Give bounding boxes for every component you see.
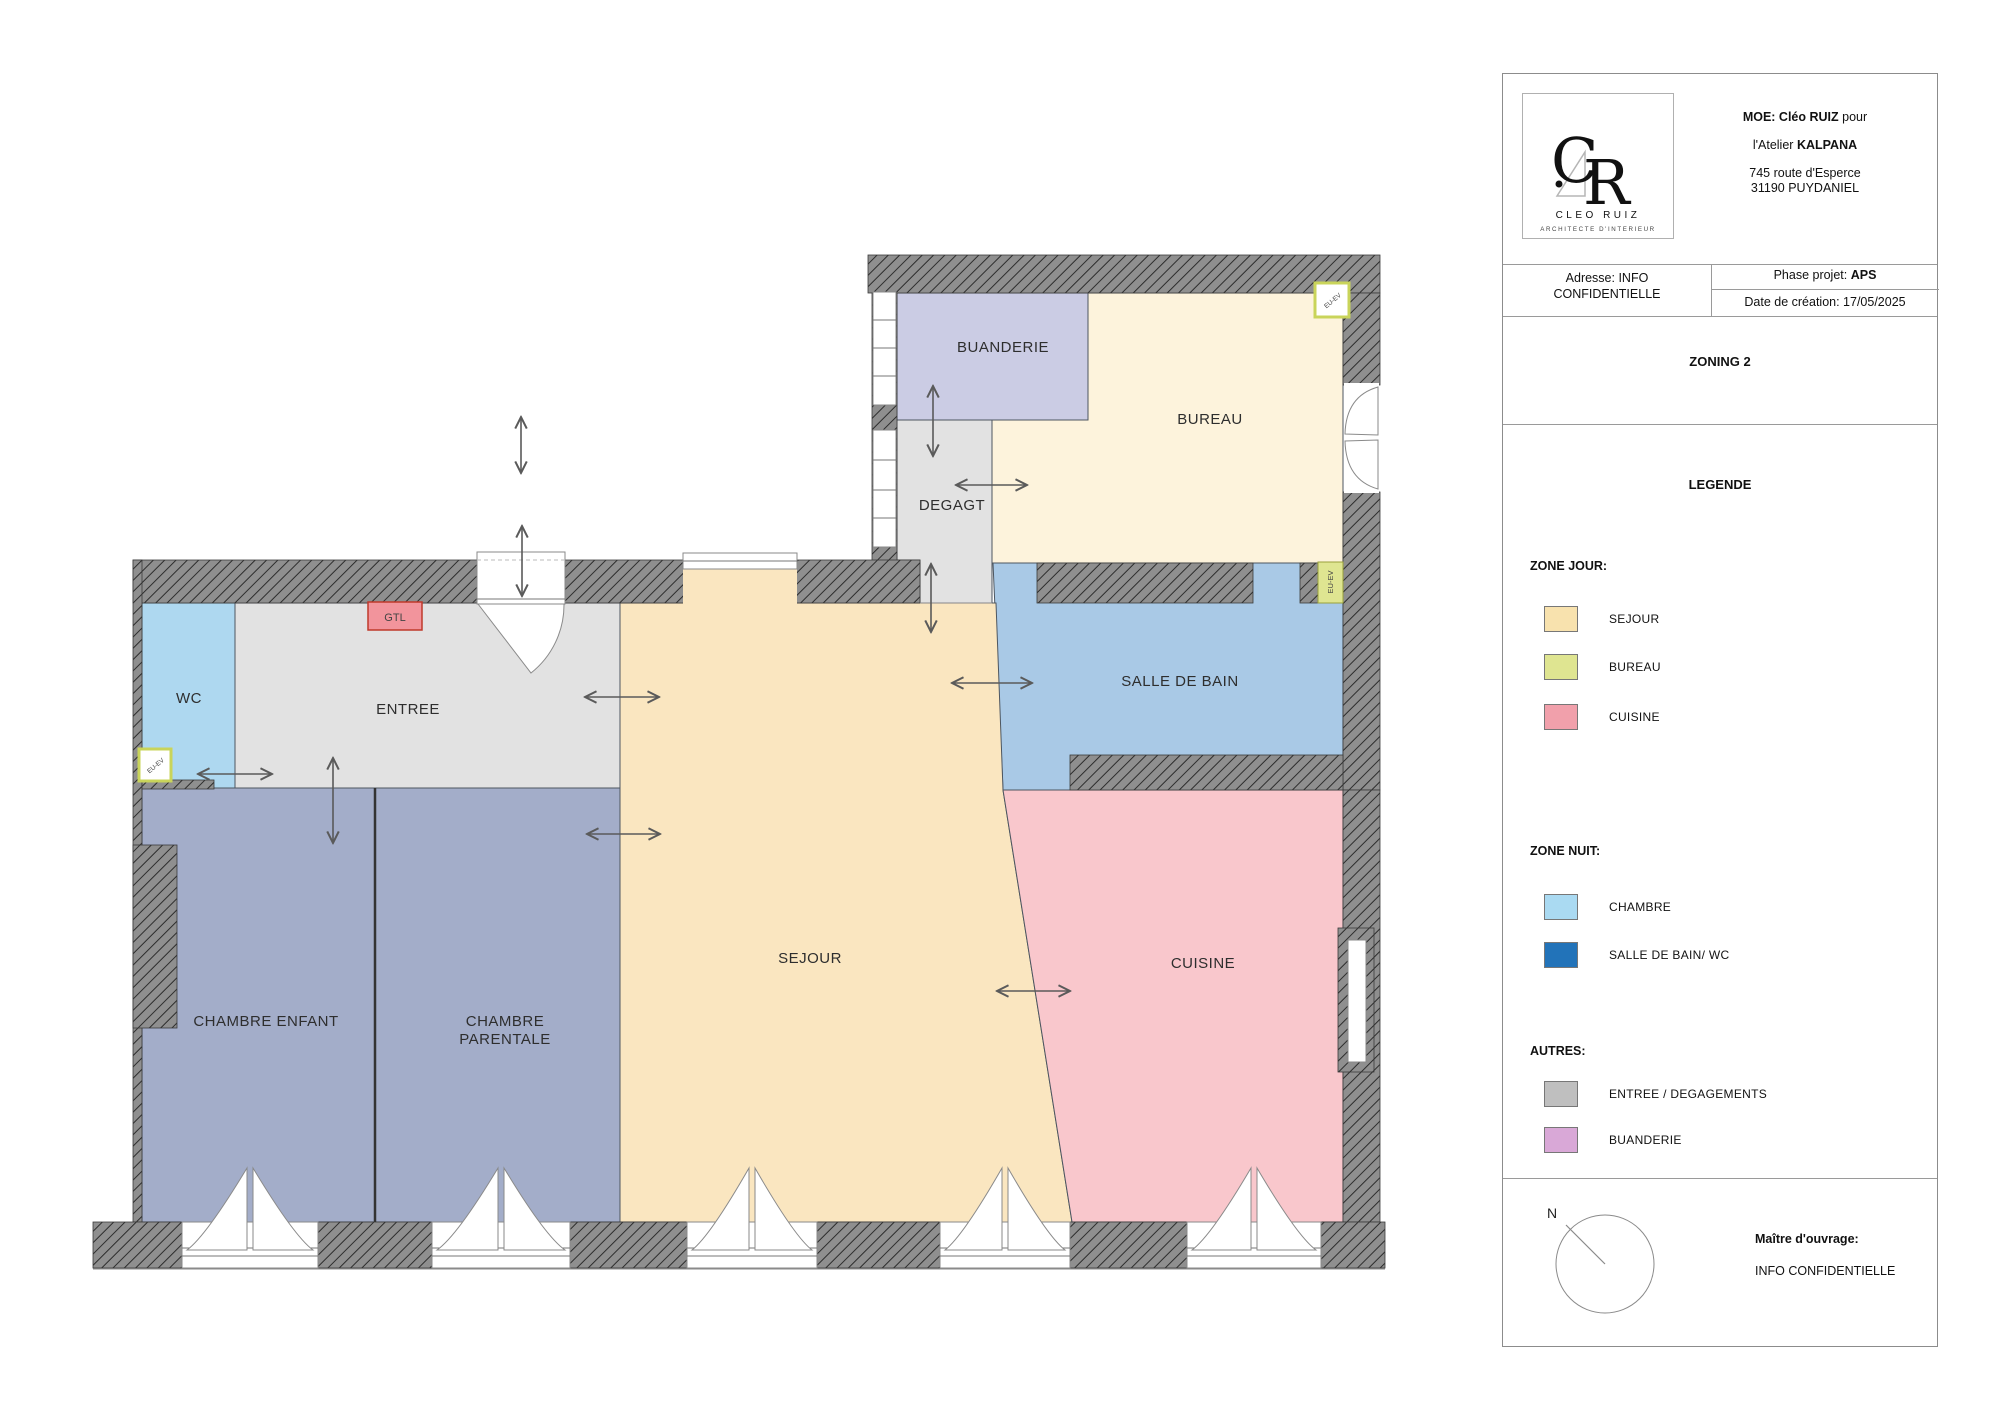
swatch-entree-degagements bbox=[1544, 1081, 1578, 1107]
window-cuisine-right bbox=[1348, 940, 1366, 1062]
label-chambre-parentale-2: PARENTALE bbox=[459, 1031, 550, 1048]
label-degagt: DEGAGT bbox=[919, 497, 985, 514]
logo-monogram: C R CLEO RUIZ ARCHITECTE D'INTERIEUR bbox=[1523, 94, 1673, 238]
atelier-line: l'Atelier KALPANA bbox=[1681, 138, 1929, 153]
address-line-1: 745 route d'Esperce bbox=[1681, 166, 1929, 181]
room-entree bbox=[235, 603, 620, 788]
swatch-cuisine bbox=[1544, 704, 1578, 730]
svg-text:ARCHITECTE D'INTERIEUR: ARCHITECTE D'INTERIEUR bbox=[1540, 226, 1655, 233]
compass-icon: N bbox=[1539, 1192, 1671, 1324]
divider bbox=[1503, 424, 1937, 425]
svg-text:R: R bbox=[1583, 146, 1632, 219]
svg-text:N: N bbox=[1547, 1205, 1557, 1221]
legend-item-entree-degagements: ENTREE / DEGAGEMENTS bbox=[1544, 1081, 1767, 1107]
phase-cell: Phase projet: APS bbox=[1711, 268, 1939, 282]
label-wc: WC bbox=[176, 690, 202, 707]
legend-title: LEGENDE bbox=[1503, 477, 1937, 492]
adresse-cell: Adresse: INFO CONFIDENTIELLE bbox=[1503, 270, 1711, 302]
label-bureau: BUREAU bbox=[1177, 411, 1243, 428]
moe-line: MOE: Cléo RUIZ pour bbox=[1681, 110, 1929, 125]
zone-nuit-title: ZONE NUIT: bbox=[1530, 844, 1600, 858]
room-buanderie bbox=[897, 293, 1088, 420]
label-chambre-parentale-1: CHAMBRE bbox=[466, 1013, 545, 1030]
label-buanderie: BUANDERIE bbox=[957, 339, 1049, 356]
eu-ev-marker-wc: EU-EV bbox=[139, 749, 171, 781]
floor-plan-page: GTL EU-EV EU-EV EU-EV bbox=[0, 0, 1995, 1413]
date-cell: Date de création: 17/05/2025 bbox=[1711, 295, 1939, 309]
swatch-bureau bbox=[1544, 654, 1578, 680]
legend-item-sejour: SEJOUR bbox=[1544, 606, 1659, 632]
label-sejour: SEJOUR bbox=[778, 950, 842, 967]
svg-text:GTL: GTL bbox=[384, 612, 405, 624]
zoning-title: ZONING 2 bbox=[1503, 354, 1937, 369]
divider bbox=[1503, 264, 1937, 265]
title-block: C R CLEO RUIZ ARCHITECTE D'INTERIEUR MOE… bbox=[1502, 73, 1938, 1347]
swatch-sejour bbox=[1544, 606, 1578, 632]
client-label: Maître d'ouvrage: bbox=[1755, 1232, 1859, 1246]
swatch-sdb-wc bbox=[1544, 942, 1578, 968]
logo: C R CLEO RUIZ ARCHITECTE D'INTERIEUR bbox=[1522, 93, 1674, 239]
client-value: INFO CONFIDENTIELLE bbox=[1755, 1264, 1895, 1278]
window-buanderie-2 bbox=[873, 430, 896, 547]
window-sejour-top bbox=[683, 553, 797, 604]
swatch-buanderie bbox=[1544, 1127, 1578, 1153]
double-door-bureau bbox=[1344, 383, 1379, 493]
autres-title: AUTRES: bbox=[1530, 1044, 1586, 1058]
legend-item-bureau: BUREAU bbox=[1544, 654, 1661, 680]
label-chambre-enfant: CHAMBRE ENFANT bbox=[193, 1013, 338, 1030]
legend-item-chambre: CHAMBRE bbox=[1544, 894, 1671, 920]
room-chambre-parentale bbox=[375, 788, 620, 1222]
project-header: MOE: Cléo RUIZ pour l'Atelier KALPANA 74… bbox=[1681, 110, 1929, 196]
svg-text:EU-EV: EU-EV bbox=[1326, 571, 1335, 594]
legend-item-cuisine: CUISINE bbox=[1544, 704, 1660, 730]
divider bbox=[1503, 1178, 1937, 1179]
divider bbox=[1503, 316, 1937, 317]
divider bbox=[1711, 289, 1939, 290]
label-cuisine: CUISINE bbox=[1171, 955, 1235, 972]
zone-jour-title: ZONE JOUR: bbox=[1530, 559, 1607, 573]
eu-ev-marker-bureau: EU-EV bbox=[1315, 283, 1349, 317]
gtl-box: GTL bbox=[368, 602, 422, 630]
label-salle-de-bain: SALLE DE BAIN bbox=[1121, 673, 1238, 690]
label-entree: ENTREE bbox=[376, 701, 440, 718]
window-buanderie-1 bbox=[873, 292, 896, 405]
svg-text:CLEO RUIZ: CLEO RUIZ bbox=[1556, 210, 1641, 221]
legend-item-sdb-wc: SALLE DE BAIN/ WC bbox=[1544, 942, 1729, 968]
address-line-2: 31190 PUYDANIEL bbox=[1681, 181, 1929, 196]
swatch-chambre bbox=[1544, 894, 1578, 920]
legend-item-buanderie: BUANDERIE bbox=[1544, 1127, 1682, 1153]
eu-ev-marker-sdb: EU-EV bbox=[1318, 562, 1343, 603]
